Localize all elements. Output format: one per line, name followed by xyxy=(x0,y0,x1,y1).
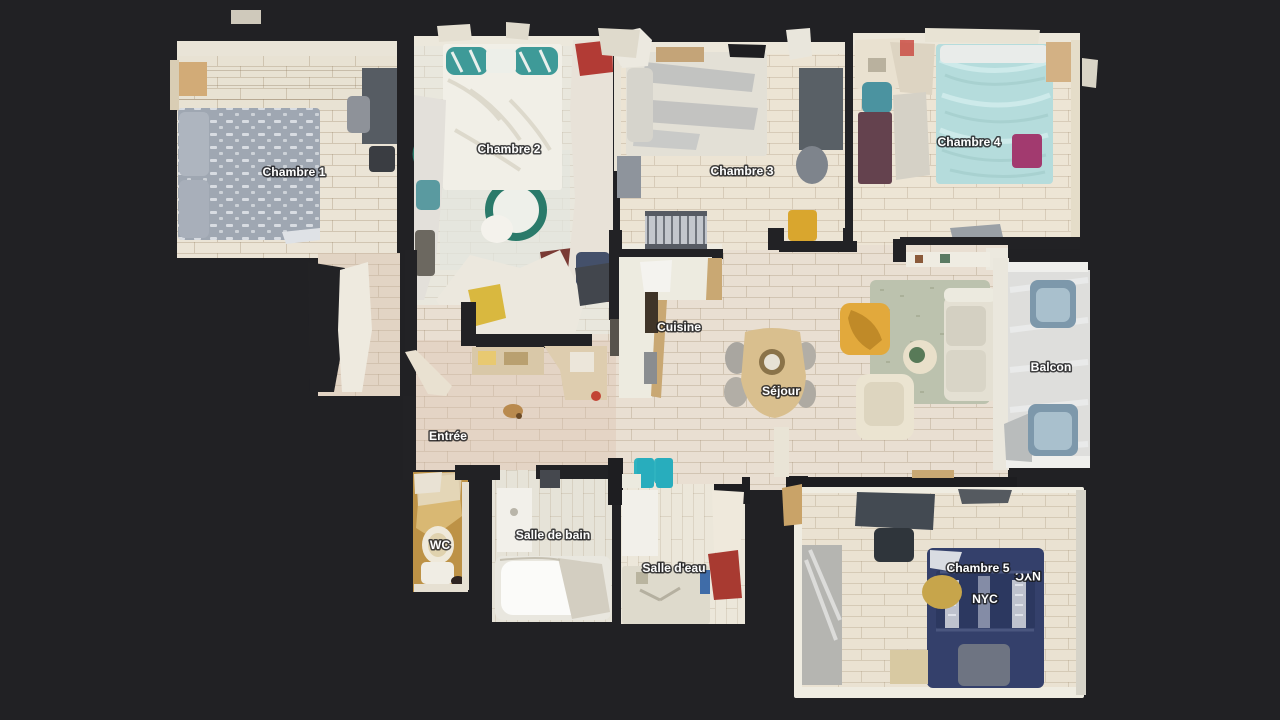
svg-text:Chambre 1: Chambre 1 xyxy=(263,165,326,179)
svg-text:Séjour: Séjour xyxy=(762,384,800,398)
svg-text:Entrée: Entrée xyxy=(429,429,467,443)
svg-text:Cuisine: Cuisine xyxy=(657,320,701,334)
svg-text:Salle d'eau: Salle d'eau xyxy=(642,561,705,575)
svg-text:Chambre 5: Chambre 5 xyxy=(947,561,1010,575)
svg-text:Balcon: Balcon xyxy=(1031,360,1072,374)
svg-text:WC: WC xyxy=(430,538,451,552)
svg-text:NYC: NYC xyxy=(972,592,998,606)
svg-text:Chambre 4: Chambre 4 xyxy=(938,135,1001,149)
svg-text:Salle de bain: Salle de bain xyxy=(516,528,591,542)
svg-text:Chambre 2: Chambre 2 xyxy=(478,142,541,156)
svg-text:Chambre 3: Chambre 3 xyxy=(711,164,774,178)
